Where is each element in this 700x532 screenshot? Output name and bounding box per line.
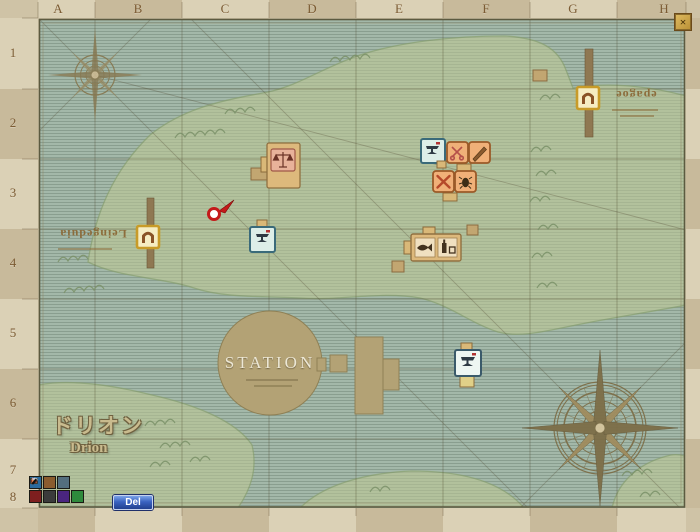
row-label-2: 2 (2, 115, 24, 131)
row-label-8: 8 (2, 489, 24, 505)
row-label-3: 3 (2, 185, 24, 201)
border-bottom-strip (38, 508, 686, 532)
herb-marker-button[interactable] (71, 490, 84, 503)
cross-building (355, 337, 383, 414)
col-label-d: D (301, 1, 323, 17)
col-label-a: A (47, 1, 69, 17)
meat-marker-button[interactable] (29, 490, 42, 503)
row-label-6: 6 (2, 395, 24, 411)
region-title-jp: ドリオン (52, 410, 144, 440)
row-label-5: 5 (2, 325, 24, 341)
west-gate-label: Leingeduia (48, 226, 138, 241)
herb-knife-icon (29, 476, 39, 486)
north-gate-label: epagoe (603, 87, 669, 102)
market-building-marker (261, 143, 300, 188)
marker-legend (29, 476, 87, 504)
col-label-c: C (214, 1, 236, 17)
close-button[interactable]: × (674, 13, 692, 31)
flag-marker-button[interactable] (57, 476, 70, 489)
col-label-b: B (127, 1, 149, 17)
player-dot-icon (209, 209, 220, 220)
blacksmith-marker-north (421, 139, 446, 168)
col-label-h: H (653, 1, 675, 17)
west-gate-marker (137, 226, 159, 248)
row-label-7: 7 (2, 462, 24, 478)
station-label: STATION (214, 353, 326, 373)
axe-marker-button[interactable] (43, 490, 56, 503)
row-label-4: 4 (2, 255, 24, 271)
border-right-strip (686, 18, 700, 508)
chest-marker-button[interactable] (43, 476, 56, 489)
region-title-en: Drion (70, 440, 108, 457)
col-label-f: F (475, 1, 497, 17)
delete-marker-button[interactable]: Del (113, 495, 153, 510)
north-gate-marker (577, 87, 599, 109)
row-label-1: 1 (2, 45, 24, 61)
col-label-e: E (388, 1, 410, 17)
map-window: A B C D E F G H 1 2 3 4 5 6 7 8 STATION … (0, 0, 700, 532)
col-label-g: G (562, 1, 584, 17)
pickaxe-marker-button[interactable] (57, 490, 70, 503)
